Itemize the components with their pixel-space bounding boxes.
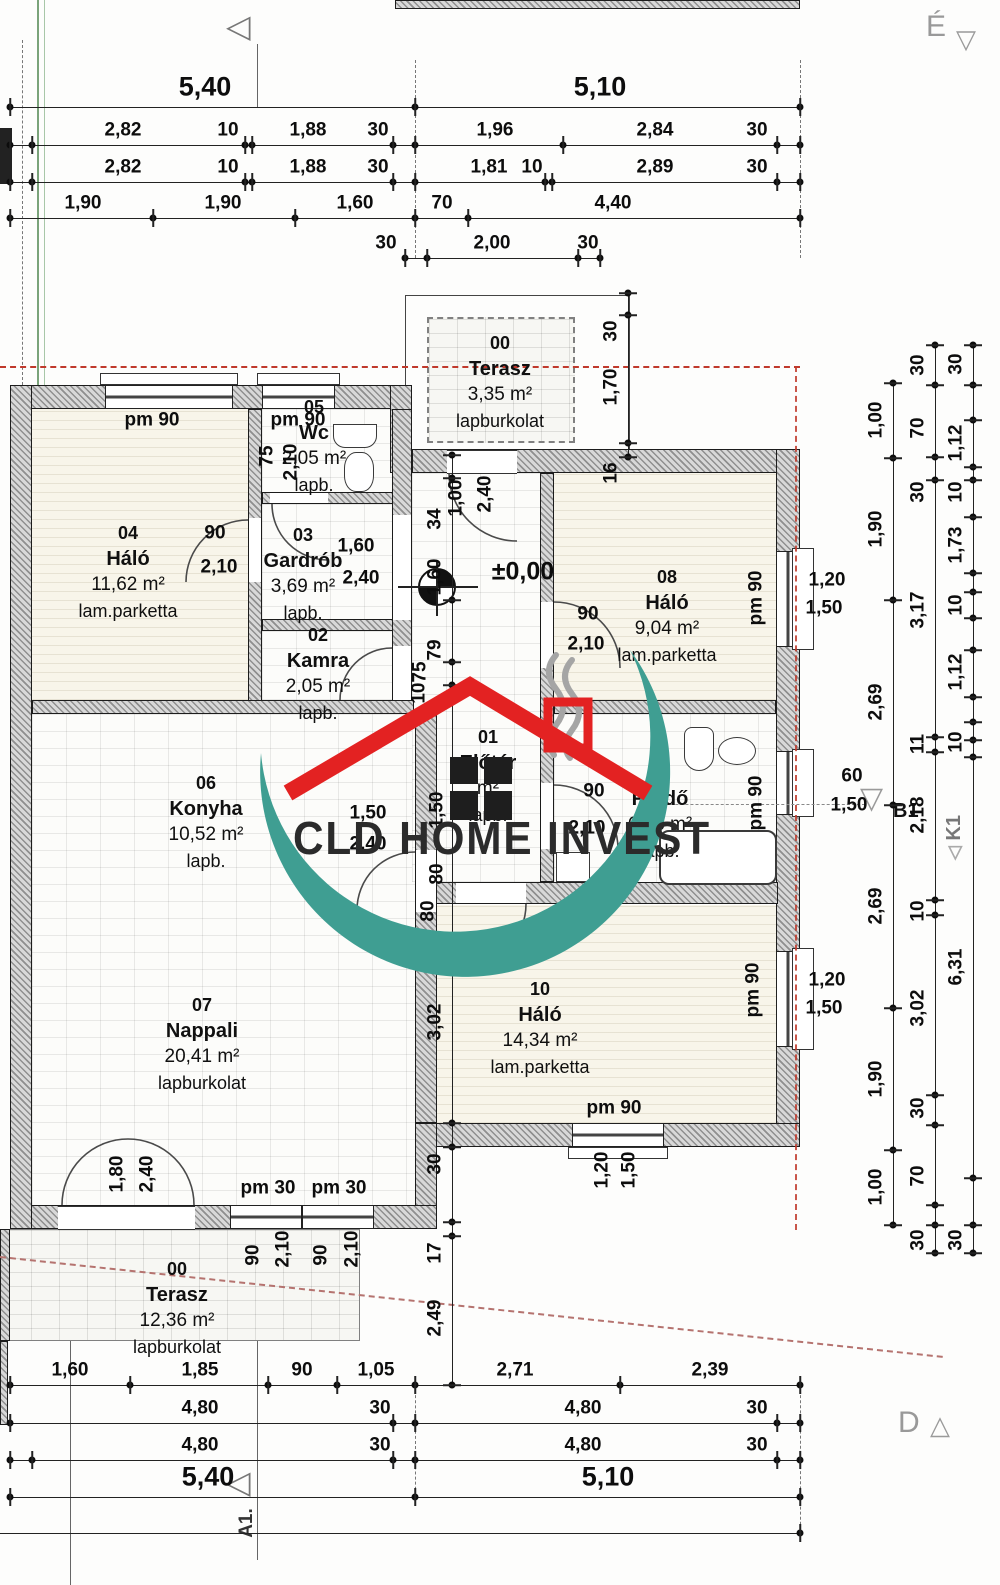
dim-tick-dash: [884, 599, 902, 601]
dim-tick-dash: [414, 98, 416, 116]
room-name: Előtér: [460, 750, 517, 776]
room-area: 12,36 m²: [133, 1308, 221, 1334]
spec-label: pm 90: [587, 1099, 642, 1118]
dim-label: 10: [947, 594, 966, 615]
room-floor: lam.parketta: [78, 598, 177, 624]
dim-label: 1,90: [65, 194, 102, 213]
dim-line: [452, 455, 453, 1385]
dim-tick-dash: [31, 136, 33, 154]
dim-tick-dash: [926, 736, 944, 738]
dim-label: 30: [947, 1229, 966, 1250]
dim-label: 4,80: [565, 1436, 602, 1455]
dim-tick-dash: [776, 1414, 778, 1432]
dim-label: 10: [217, 121, 238, 140]
dim-tick-dash: [251, 173, 253, 191]
spec-label: 75: [258, 445, 277, 466]
dim-label: 4,80: [182, 1436, 219, 1455]
dim-label: 30: [746, 1436, 767, 1455]
dim-tick-dash: [443, 599, 461, 601]
dim-label: 30: [909, 1229, 928, 1250]
spec-label: 1,60: [338, 537, 375, 556]
dim-tick-dash: [414, 173, 416, 191]
room-number: 09: [628, 760, 692, 786]
dim-label: 1,96: [477, 121, 514, 140]
dim-tick-dash: [619, 1376, 621, 1394]
dim-tick-dash: [467, 209, 469, 227]
dim-label: 3,02: [426, 1004, 445, 1041]
dim-label: 17: [426, 1242, 445, 1263]
dim-label: 1,90: [867, 1061, 886, 1098]
dim-label: 30: [909, 1097, 928, 1118]
dim-tick-dash: [392, 136, 394, 154]
dim-line: [0, 1533, 800, 1534]
room-floor: lapb.: [282, 472, 346, 498]
dim-tick-dash: [776, 1451, 778, 1469]
room-number: 03: [264, 522, 343, 548]
dim-tick-dash: [964, 1224, 982, 1226]
room-area: 2,05 m²: [282, 446, 346, 472]
dim-label: 1,60: [52, 1361, 89, 1380]
dim-tick-dash: [9, 1414, 11, 1432]
dim-label: 3,02: [909, 990, 928, 1027]
dim-label: 10: [217, 158, 238, 177]
floor-plan-canvas: ±0,00 É ▽ D △ ▽ B1 ◁ K1 ◁ ◁ A1. 5,405,10…: [0, 0, 1000, 1585]
dim-label: 30: [367, 121, 388, 140]
dim-tick-dash: [964, 479, 982, 481]
dim-label: 30: [375, 234, 396, 253]
dim-tick-dash: [964, 1252, 982, 1254]
spec-label: pm 30: [312, 1179, 367, 1198]
spec-label: 80: [428, 863, 447, 884]
dim-tick-dash: [926, 384, 944, 386]
dim-tick-dash: [443, 1221, 461, 1223]
spec-label: 2,40: [138, 1156, 157, 1193]
spec-label: pm 90: [747, 571, 766, 626]
room-number: 10: [490, 976, 589, 1002]
room-name: Konyha: [169, 796, 244, 822]
dim-tick-dash: [926, 1094, 944, 1096]
spec-label: 2,10: [274, 1231, 293, 1268]
room-area: 3,35 m²: [456, 382, 544, 408]
dim-label: 1,90: [867, 511, 886, 548]
dim-tick-dash: [964, 572, 982, 574]
dim-line: [10, 1423, 800, 1424]
dim-tick-dash: [9, 1376, 11, 1394]
dim-tick-dash: [799, 1376, 801, 1394]
dim-label: 30: [746, 121, 767, 140]
room-number: 04: [78, 520, 177, 546]
dim-tick-dash: [926, 344, 944, 346]
room-floor: lam.parketta: [490, 1054, 589, 1080]
room-name: Wc: [282, 420, 346, 446]
dim-label: 10: [909, 900, 928, 921]
dim-line: [10, 107, 800, 108]
room-floor: lapburkolat: [456, 408, 544, 434]
dim-label: 2,39: [692, 1361, 729, 1380]
dim-tick-dash: [926, 751, 944, 753]
dim-label: 1,73: [947, 527, 966, 564]
room-floor: lapburkolat: [158, 1070, 246, 1096]
spec-label: 2,10: [201, 558, 238, 577]
dim-tick-dash: [443, 1146, 461, 1148]
dim-tick-dash: [926, 1224, 944, 1226]
dim-tick-dash: [544, 173, 546, 191]
dim-tick-dash: [884, 804, 902, 806]
room-name: Gardrób: [264, 548, 343, 574]
spec-label: 1,20: [809, 571, 846, 590]
dim-label: 30: [746, 158, 767, 177]
dim-label: 2,00: [474, 234, 511, 253]
dim-label: 2,69: [867, 684, 886, 721]
dim-tick-dash: [926, 456, 944, 458]
dim-line: [10, 145, 800, 146]
dim-tick-dash: [964, 466, 982, 468]
dim-tick-dash: [799, 136, 801, 154]
dim-tick-dash: [776, 173, 778, 191]
spec-label: 2,10: [410, 683, 429, 720]
dim-tick-dash: [964, 617, 982, 619]
room-number: 02: [286, 622, 350, 648]
dim-line: [405, 258, 600, 259]
spec-label: 2,10: [568, 635, 605, 654]
dim-tick-dash: [443, 661, 461, 663]
spec-label: 90: [583, 782, 604, 801]
dim-label: 30: [426, 1153, 445, 1174]
dim-line: [10, 182, 800, 183]
dim-tick-dash: [251, 136, 253, 154]
room-number: 05: [282, 394, 346, 420]
dim-label: 2,82: [105, 158, 142, 177]
dim-label: 30: [909, 354, 928, 375]
room-name: Terasz: [456, 356, 544, 382]
dim-tick-dash: [964, 591, 982, 593]
room-label: 02Kamra2,05 m²lapb.: [286, 622, 350, 726]
dim-label: 30: [746, 1399, 767, 1418]
spec-label: 90: [204, 524, 225, 543]
room-number: 01: [460, 724, 517, 750]
room-area: 14,34 m²: [490, 1028, 589, 1054]
dim-tick-dash: [619, 442, 637, 444]
dim-tick-dash: [964, 649, 982, 651]
spec-label: 1,50: [620, 1152, 639, 1189]
dim-tick-dash: [964, 419, 982, 421]
dim-label: 10: [947, 481, 966, 502]
dim-label: 1,81: [471, 158, 508, 177]
dim-tick-dash: [964, 739, 982, 741]
dim-tick-dash: [443, 1384, 461, 1386]
dim-tick-dash: [9, 209, 11, 227]
dim-tick-dash: [267, 1376, 269, 1394]
dim-tick-dash: [926, 479, 944, 481]
spec-label: 1,00: [447, 480, 466, 517]
dim-tick-dash: [392, 1414, 394, 1432]
room-label: 00Terasz3,35 m²lapburkolat: [456, 330, 544, 434]
dim-tick-dash: [799, 173, 801, 191]
dim-tick-dash: [799, 98, 801, 116]
spec-label: 90: [244, 1244, 263, 1265]
dim-tick-dash: [926, 1252, 944, 1254]
room-label: 04Háló11,62 m²lam.parketta: [78, 520, 177, 624]
dim-label: 3,17: [909, 592, 928, 629]
dim-tick-dash: [884, 457, 902, 459]
dim-tick-dash: [414, 209, 416, 227]
dim-label: 4,80: [182, 1399, 219, 1418]
dim-label: 2,82: [105, 121, 142, 140]
spec-label: 1,50: [806, 999, 843, 1018]
dim-label: 16: [602, 462, 621, 483]
dim-label: 1,70: [602, 369, 621, 406]
dim-tick-dash: [964, 696, 982, 698]
room-area: 3,69 m²: [264, 574, 343, 600]
dim-label: 30: [577, 234, 598, 253]
room-number: 00: [456, 330, 544, 356]
dim-tick-dash: [336, 1376, 338, 1394]
dim-tick-dash: [799, 1488, 801, 1506]
room-label: 05Wc2,05 m²lapb.: [282, 394, 346, 498]
spec-label: pm 90: [125, 411, 180, 430]
dim-tick-dash: [414, 1376, 416, 1394]
dim-label: 2,18: [909, 797, 928, 834]
dim-tick-dash: [964, 756, 982, 758]
dim-tick-dash: [964, 344, 982, 346]
dim-label: 30: [367, 158, 388, 177]
dim-label: 70: [909, 417, 928, 438]
room-floor: lapburkolat: [133, 1334, 221, 1360]
dim-tick-dash: [964, 721, 982, 723]
dim-tick-dash: [392, 173, 394, 191]
spec-label: 90: [312, 1244, 331, 1265]
dim-label: 1,12: [947, 654, 966, 691]
dim-tick-dash: [599, 249, 601, 267]
room-number: 07: [158, 992, 246, 1018]
room-label: 07Nappali20,41 m²lapburkolat: [158, 992, 246, 1096]
dim-label: 70: [431, 194, 452, 213]
room-name: Háló: [78, 546, 177, 572]
dim-tick-dash: [562, 136, 564, 154]
dim-label: 1,85: [182, 1361, 219, 1380]
dim-tick-dash: [414, 1451, 416, 1469]
dim-label: 1,60: [426, 559, 445, 596]
spec-label: 60: [841, 767, 862, 786]
spec-label: pm 90: [747, 776, 766, 831]
room-name: Háló: [490, 1002, 589, 1028]
room-name: Nappali: [158, 1018, 246, 1044]
dim-label: 1,00: [867, 1169, 886, 1206]
room-label: 06Konyha10,52 m²lapb.: [169, 770, 244, 874]
room-area: m²: [460, 776, 517, 802]
dim-tick-dash: [926, 1204, 944, 1206]
dim-tick-dash: [426, 249, 428, 267]
dim-tick-dash: [9, 1488, 11, 1506]
dim-tick-dash: [776, 136, 778, 154]
dim-tick-dash: [926, 914, 944, 916]
spec-label: 1,80: [108, 1156, 127, 1193]
spec-label: 2,40: [343, 569, 380, 588]
room-number: 08: [617, 564, 716, 590]
dim-tick-dash: [884, 1149, 902, 1151]
dim-tick-dash: [443, 1235, 461, 1237]
dim-tick-dash: [414, 1488, 416, 1506]
dim-label: 30: [909, 481, 928, 502]
dim-tick-dash: [964, 384, 982, 386]
room-label: 08Háló9,04 m²lam.parketta: [617, 564, 716, 668]
dim-label: 1,00: [867, 402, 886, 439]
dim-tick-dash: [443, 684, 461, 686]
watermark-text: CLD HOME INVEST: [293, 811, 711, 865]
dim-tick-dash: [414, 1414, 416, 1432]
dim-tick-dash: [9, 173, 11, 191]
room-area: 20,41 m²: [158, 1044, 246, 1070]
dim-tick-dash: [9, 136, 11, 154]
dim-tick-dash: [129, 1376, 131, 1394]
room-floor: lam.parketta: [617, 642, 716, 668]
dim-tick-dash: [244, 173, 246, 191]
dim-label: 79: [426, 639, 445, 660]
spec-label: 90: [577, 605, 598, 624]
spec-label: 75: [411, 661, 430, 682]
dim-label: 2,49: [426, 1300, 445, 1337]
dim-label: 70: [909, 1165, 928, 1186]
dim-tick-dash: [443, 1122, 461, 1124]
dim-label: 90: [291, 1361, 312, 1380]
dim-label: 1,12: [947, 425, 966, 462]
dim-tick-dash: [799, 1451, 801, 1469]
dim-tick-dash: [9, 98, 11, 116]
dim-label: 5,10: [582, 1464, 635, 1491]
dim-tick-dash: [551, 173, 553, 191]
dim-tick-dash: [964, 516, 982, 518]
dim-tick-dash: [31, 173, 33, 191]
dim-label: 1,05: [358, 1361, 395, 1380]
dim-label: 1,88: [290, 158, 327, 177]
dim-label: 5,40: [179, 74, 232, 101]
dim-tick-dash: [884, 1007, 902, 1009]
dim-tick-dash: [799, 1524, 801, 1542]
dim-tick-dash: [619, 456, 637, 458]
dim-label: 2,89: [637, 158, 674, 177]
dim-tick-dash: [414, 136, 416, 154]
dim-label: 2,71: [497, 1361, 534, 1380]
dim-tick-dash: [884, 382, 902, 384]
dim-label: 34: [426, 508, 445, 529]
room-number: 00: [133, 1256, 221, 1282]
dim-tick-dash: [294, 209, 296, 227]
dim-label: 10: [521, 158, 542, 177]
room-area: 2,05 m²: [286, 674, 350, 700]
room-label: 03Gardrób3,69 m²lapb.: [264, 522, 343, 626]
dimension-layer: 5,405,102,82101,88301,962,84302,82101,88…: [0, 0, 1000, 1585]
room-label: 10Háló14,34 m²lam.parketta: [490, 976, 589, 1080]
room-name: Fürdő: [628, 786, 692, 812]
room-area: 10,52 m²: [169, 822, 244, 848]
spec-label: 2,40: [476, 476, 495, 513]
dim-tick-dash: [619, 314, 637, 316]
dim-label: 2,84: [637, 121, 674, 140]
dim-tick-dash: [799, 209, 801, 227]
spec-label: 2,10: [343, 1231, 362, 1268]
dim-tick-dash: [619, 292, 637, 294]
dim-tick-dash: [799, 1414, 801, 1432]
dim-line: [10, 1460, 800, 1461]
room-floor: lapb.: [169, 848, 244, 874]
dim-label: 30: [369, 1436, 390, 1455]
dim-line: [10, 1497, 800, 1498]
dim-label: 1,88: [290, 121, 327, 140]
spec-label: 1,20: [809, 971, 846, 990]
dim-tick-dash: [152, 209, 154, 227]
dim-tick-dash: [964, 1177, 982, 1179]
dim-tick-dash: [31, 1451, 33, 1469]
dim-line: [10, 218, 800, 219]
dim-tick-dash: [9, 1451, 11, 1469]
dim-label: 1,60: [337, 194, 374, 213]
room-name: Terasz: [133, 1282, 221, 1308]
spec-label: 80: [419, 900, 438, 921]
dim-tick-dash: [926, 899, 944, 901]
room-name: Háló: [617, 590, 716, 616]
dim-label: 4,40: [595, 194, 632, 213]
spec-label: pm 90: [744, 963, 763, 1018]
dim-label: 4,80: [565, 1399, 602, 1418]
dim-tick-dash: [443, 454, 461, 456]
dim-label: 11: [909, 734, 928, 754]
dim-label: 5,40: [182, 1464, 235, 1491]
spec-label: 1,50: [806, 599, 843, 618]
spec-label: 1,50: [831, 796, 868, 815]
dim-label: 2,69: [867, 888, 886, 925]
spec-label: pm 30: [241, 1179, 296, 1198]
dim-label: 6,31: [947, 949, 966, 986]
dim-tick-dash: [392, 1451, 394, 1469]
room-number: 06: [169, 770, 244, 796]
dim-label: 30: [369, 1399, 390, 1418]
dim-tick-dash: [244, 136, 246, 154]
room-name: Kamra: [286, 648, 350, 674]
dim-label: 30: [947, 353, 966, 374]
dim-tick-dash: [926, 1124, 944, 1126]
dim-label: 1,90: [205, 194, 242, 213]
dim-label: 10: [947, 731, 966, 752]
room-area: 9,04 m²: [617, 616, 716, 642]
dim-tick-dash: [404, 249, 406, 267]
room-label: 00Terasz12,36 m²lapburkolat: [133, 1256, 221, 1360]
dim-label: 30: [602, 320, 621, 341]
dim-label: 5,10: [574, 74, 627, 101]
room-area: 11,62 m²: [78, 572, 177, 598]
room-floor: lapb.: [286, 700, 350, 726]
spec-label: 1,20: [593, 1152, 612, 1189]
dim-tick-dash: [884, 1224, 902, 1226]
